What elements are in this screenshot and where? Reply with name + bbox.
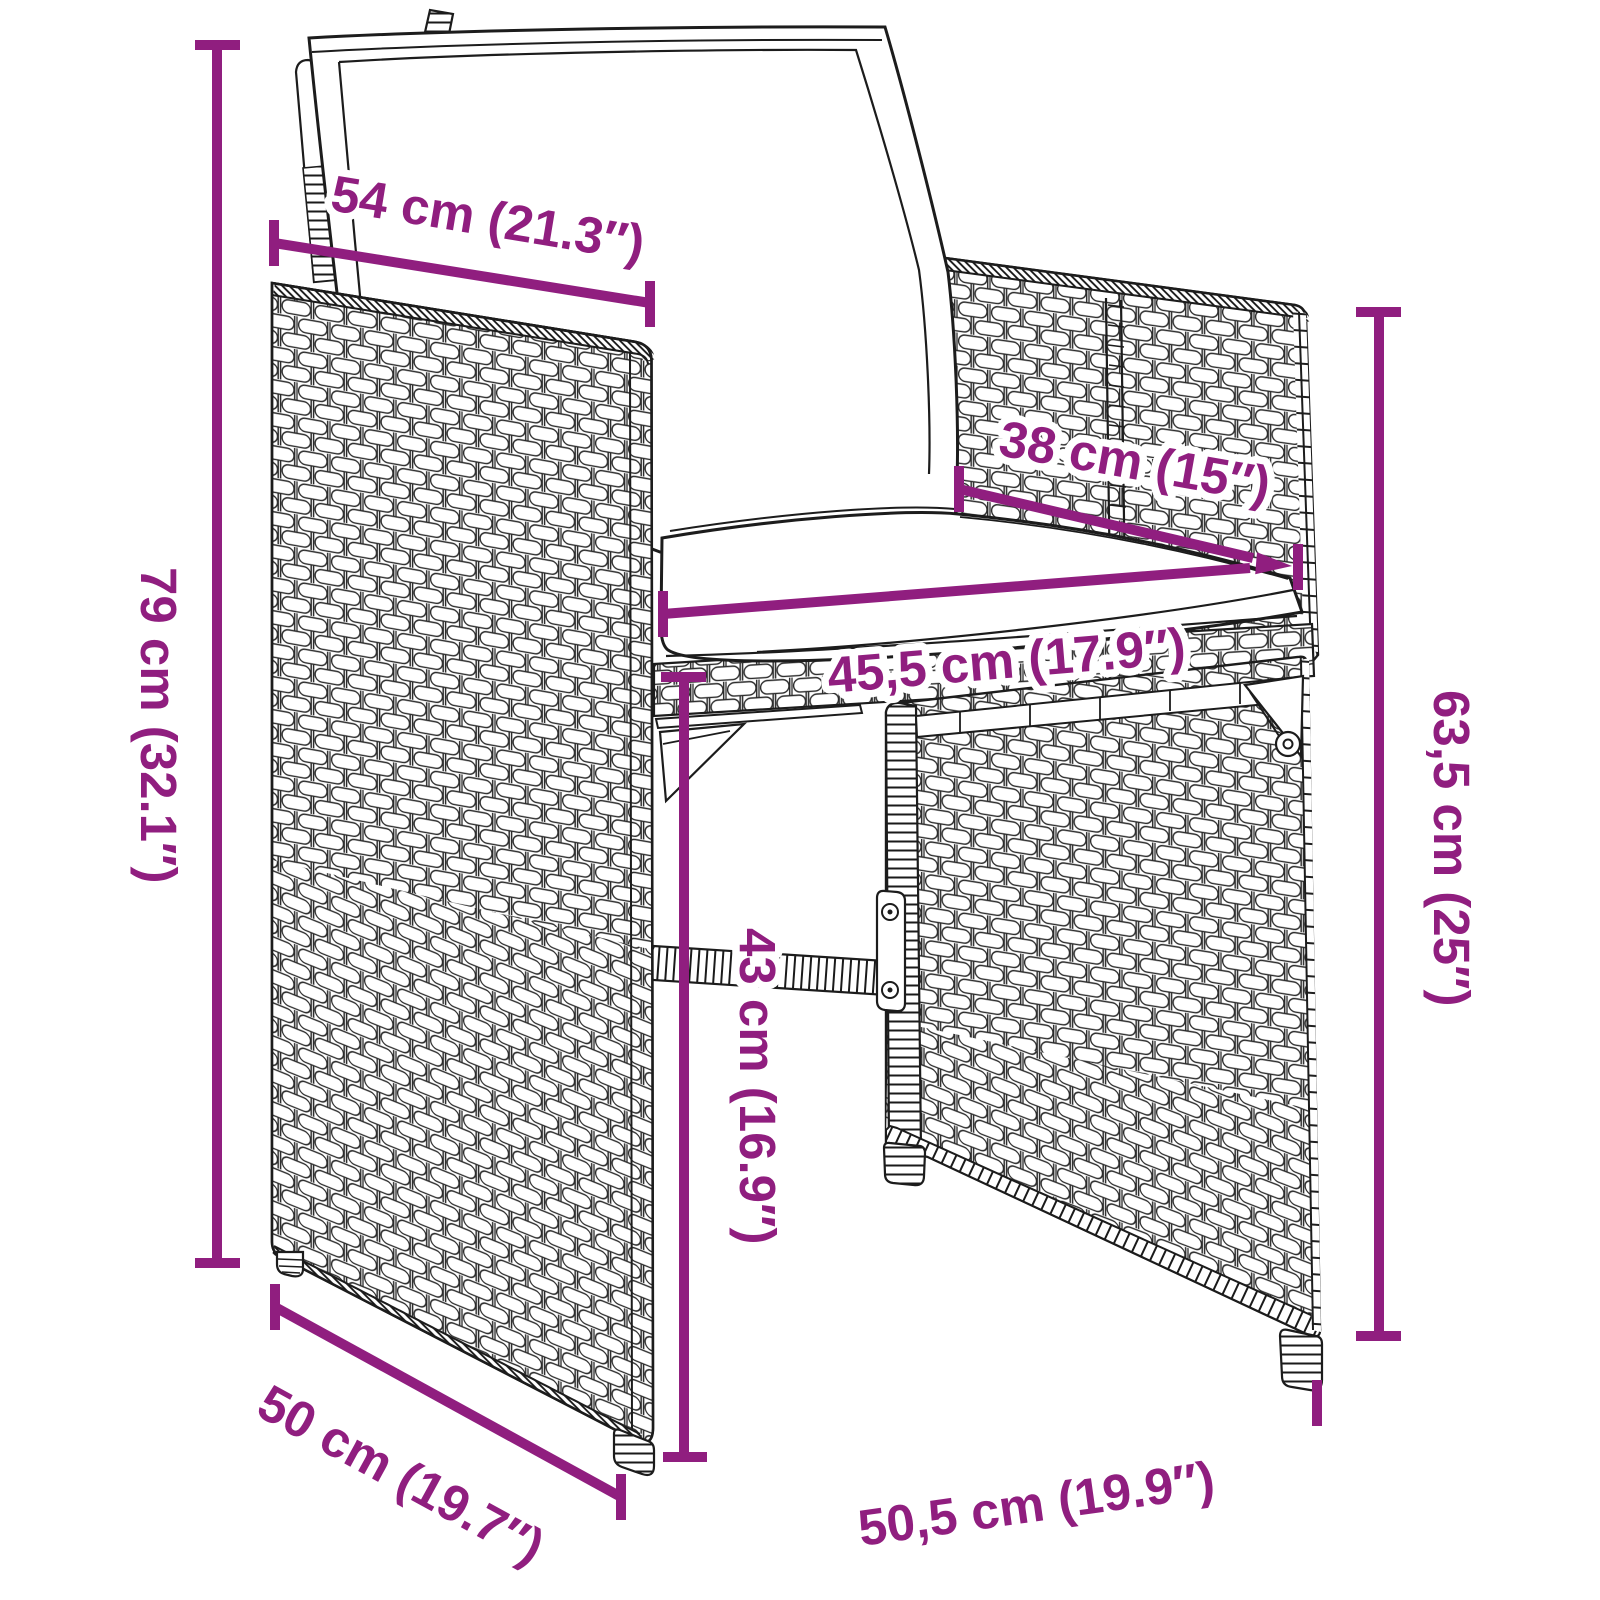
svg-text:79 cm (32.1″): 79 cm (32.1″)	[130, 567, 187, 883]
svg-text:43 cm (16.9″): 43 cm (16.9″)	[729, 928, 786, 1244]
svg-text:63,5 cm (25″): 63,5 cm (25″)	[1423, 690, 1480, 1006]
